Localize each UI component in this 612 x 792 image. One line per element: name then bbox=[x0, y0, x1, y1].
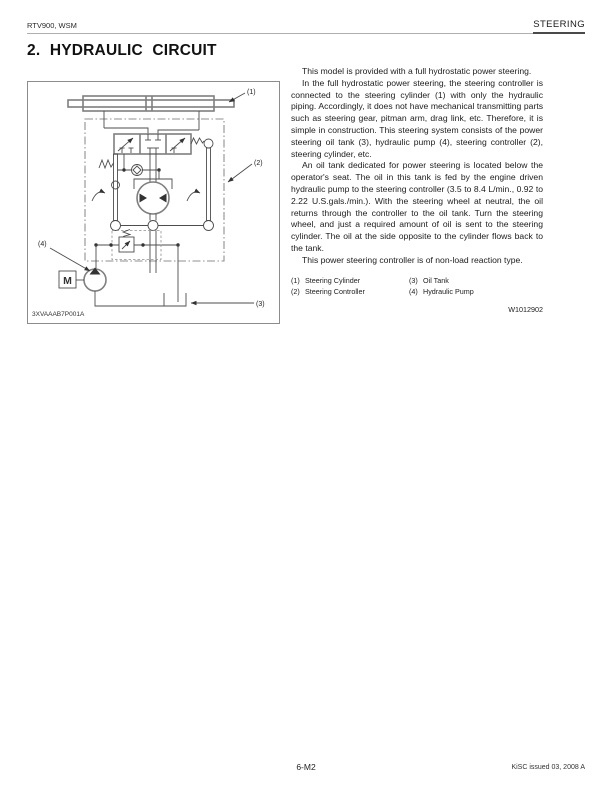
footer-issue-text: KiSC issued 03, 2008 A bbox=[511, 764, 585, 771]
oil-tank-symbol bbox=[164, 245, 186, 306]
legend-item-4: (4) Hydraulic Pump bbox=[409, 286, 527, 297]
paragraph-3: An oil tank dedicated for power steering… bbox=[291, 160, 543, 254]
header-section-text: STEERING bbox=[533, 19, 585, 34]
legend-item-3: (3) Oil Tank bbox=[409, 275, 527, 286]
callout-4: (4) bbox=[38, 241, 47, 248]
directional-valve-symbol bbox=[114, 134, 191, 154]
left-feedback-link bbox=[92, 154, 121, 231]
legend-num-1: (1) bbox=[291, 275, 305, 286]
hydraulic-pump-symbol bbox=[84, 245, 164, 306]
legend-item-2: (2) Steering Controller bbox=[291, 286, 409, 297]
callout-2: (2) bbox=[254, 160, 263, 167]
body-text-column: This model is provided with a full hydro… bbox=[291, 66, 543, 314]
legend-column-right: (3) Oil Tank (4) Hydraulic Pump bbox=[409, 275, 527, 297]
cylinder-valve-piping bbox=[104, 128, 199, 134]
header-model-text: RTV900, WSM bbox=[27, 21, 77, 33]
paragraph-4: This power steering controller is of non… bbox=[291, 255, 543, 267]
page-title: 2. HYDRAULIC CIRCUIT bbox=[27, 42, 217, 60]
callout-3: (3) bbox=[256, 301, 265, 308]
legend-label-4: Hydraulic Pump bbox=[423, 286, 474, 297]
hydraulic-circuit-schematic: M (1) (2) (3) (4) 3XVAAAB7P001A bbox=[28, 82, 279, 323]
legend-item-1: (1) Steering Cylinder bbox=[291, 275, 409, 286]
legend-label-3: Oil Tank bbox=[423, 275, 449, 286]
figure-legend: (1) Steering Cylinder (2) Steering Contr… bbox=[291, 275, 543, 297]
figure-code: 3XVAAAB7P001A bbox=[32, 311, 85, 318]
legend-num-3: (3) bbox=[409, 275, 423, 286]
check-valve-symbol bbox=[118, 154, 161, 179]
motor-symbol: M bbox=[59, 271, 84, 288]
right-feedback-link bbox=[187, 148, 214, 231]
hydraulic-circuit-figure: M (1) (2) (3) (4) 3XVAAAB7P001A bbox=[27, 81, 280, 324]
steering-cylinder-symbol bbox=[68, 96, 234, 130]
reference-number: W1012902 bbox=[291, 305, 543, 314]
legend-column-left: (1) Steering Cylinder (2) Steering Contr… bbox=[291, 275, 409, 297]
motor-label: M bbox=[63, 275, 72, 287]
manual-page: RTV900, WSM STEERING 2. HYDRAULIC CIRCUI… bbox=[0, 0, 612, 792]
callout-1: (1) bbox=[247, 89, 256, 96]
legend-label-2: Steering Controller bbox=[305, 286, 365, 297]
paragraph-2: In the full hydrostatic power steering, … bbox=[291, 78, 543, 161]
legend-label-1: Steering Cylinder bbox=[305, 275, 360, 286]
valve-spring-symbol bbox=[191, 138, 213, 148]
relief-valve-symbol bbox=[94, 230, 179, 260]
page-header: RTV900, WSM STEERING bbox=[27, 19, 585, 34]
paragraph-1: This model is provided with a full hydro… bbox=[291, 66, 543, 78]
legend-num-4: (4) bbox=[409, 286, 423, 297]
legend-num-2: (2) bbox=[291, 286, 305, 297]
